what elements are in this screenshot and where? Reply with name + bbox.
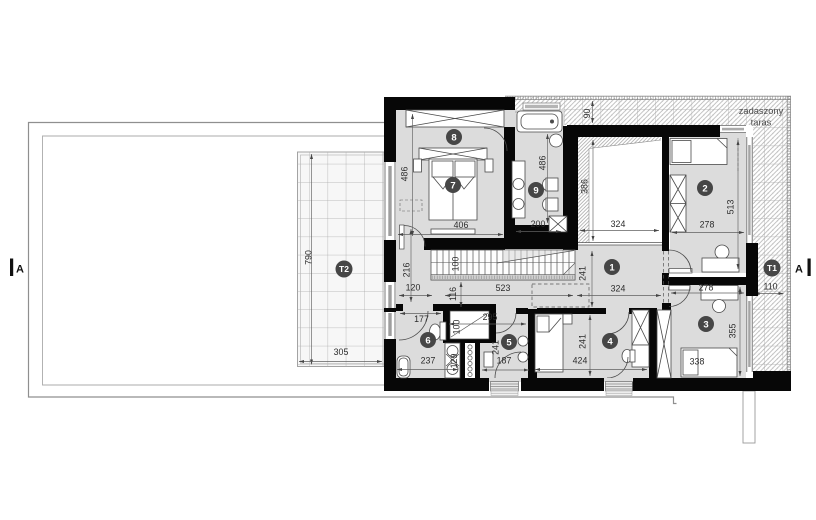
svg-text:241: 241 xyxy=(491,340,501,355)
svg-text:8: 8 xyxy=(451,133,456,144)
svg-text:9: 9 xyxy=(533,186,538,197)
svg-text:T1: T1 xyxy=(767,263,777,273)
svg-text:90: 90 xyxy=(582,109,592,119)
svg-text:4: 4 xyxy=(607,337,613,348)
svg-text:200: 200 xyxy=(531,219,546,229)
svg-text:120: 120 xyxy=(406,283,421,293)
svg-text:324: 324 xyxy=(611,219,626,229)
svg-text:5: 5 xyxy=(506,338,512,349)
svg-text:177: 177 xyxy=(414,314,429,324)
svg-text:790: 790 xyxy=(304,250,314,265)
svg-text:241: 241 xyxy=(578,266,588,281)
svg-text:6: 6 xyxy=(425,336,430,347)
svg-text:116: 116 xyxy=(448,287,458,301)
svg-text:486: 486 xyxy=(538,156,548,171)
svg-text:523: 523 xyxy=(496,283,511,293)
svg-text:3: 3 xyxy=(703,320,708,331)
svg-text:187: 187 xyxy=(497,356,512,366)
svg-text:129: 129 xyxy=(449,354,459,369)
svg-text:424: 424 xyxy=(573,356,588,366)
svg-text:513: 513 xyxy=(726,200,736,215)
svg-text:216: 216 xyxy=(402,263,412,278)
svg-text:T2: T2 xyxy=(339,264,349,274)
svg-text:A: A xyxy=(16,264,24,276)
svg-text:305: 305 xyxy=(334,347,349,357)
svg-text:A: A xyxy=(795,264,803,276)
svg-text:7: 7 xyxy=(450,181,455,192)
svg-text:406: 406 xyxy=(454,220,469,230)
svg-text:278: 278 xyxy=(699,283,714,293)
svg-text:1: 1 xyxy=(609,263,615,274)
svg-text:taras: taras xyxy=(751,118,772,128)
svg-text:110: 110 xyxy=(763,282,777,292)
svg-text:100: 100 xyxy=(452,320,462,335)
svg-text:zadaszony: zadaszony xyxy=(739,106,784,116)
svg-text:237: 237 xyxy=(421,356,436,366)
svg-text:2: 2 xyxy=(702,184,707,195)
svg-text:355: 355 xyxy=(728,324,738,339)
svg-text:100: 100 xyxy=(451,257,461,272)
svg-text:486: 486 xyxy=(400,167,410,182)
svg-text:324: 324 xyxy=(611,284,626,294)
svg-text:278: 278 xyxy=(700,220,715,230)
svg-text:386: 386 xyxy=(580,179,590,194)
svg-text:338: 338 xyxy=(690,357,705,367)
svg-text:295: 295 xyxy=(483,312,498,322)
svg-text:241: 241 xyxy=(578,334,588,349)
